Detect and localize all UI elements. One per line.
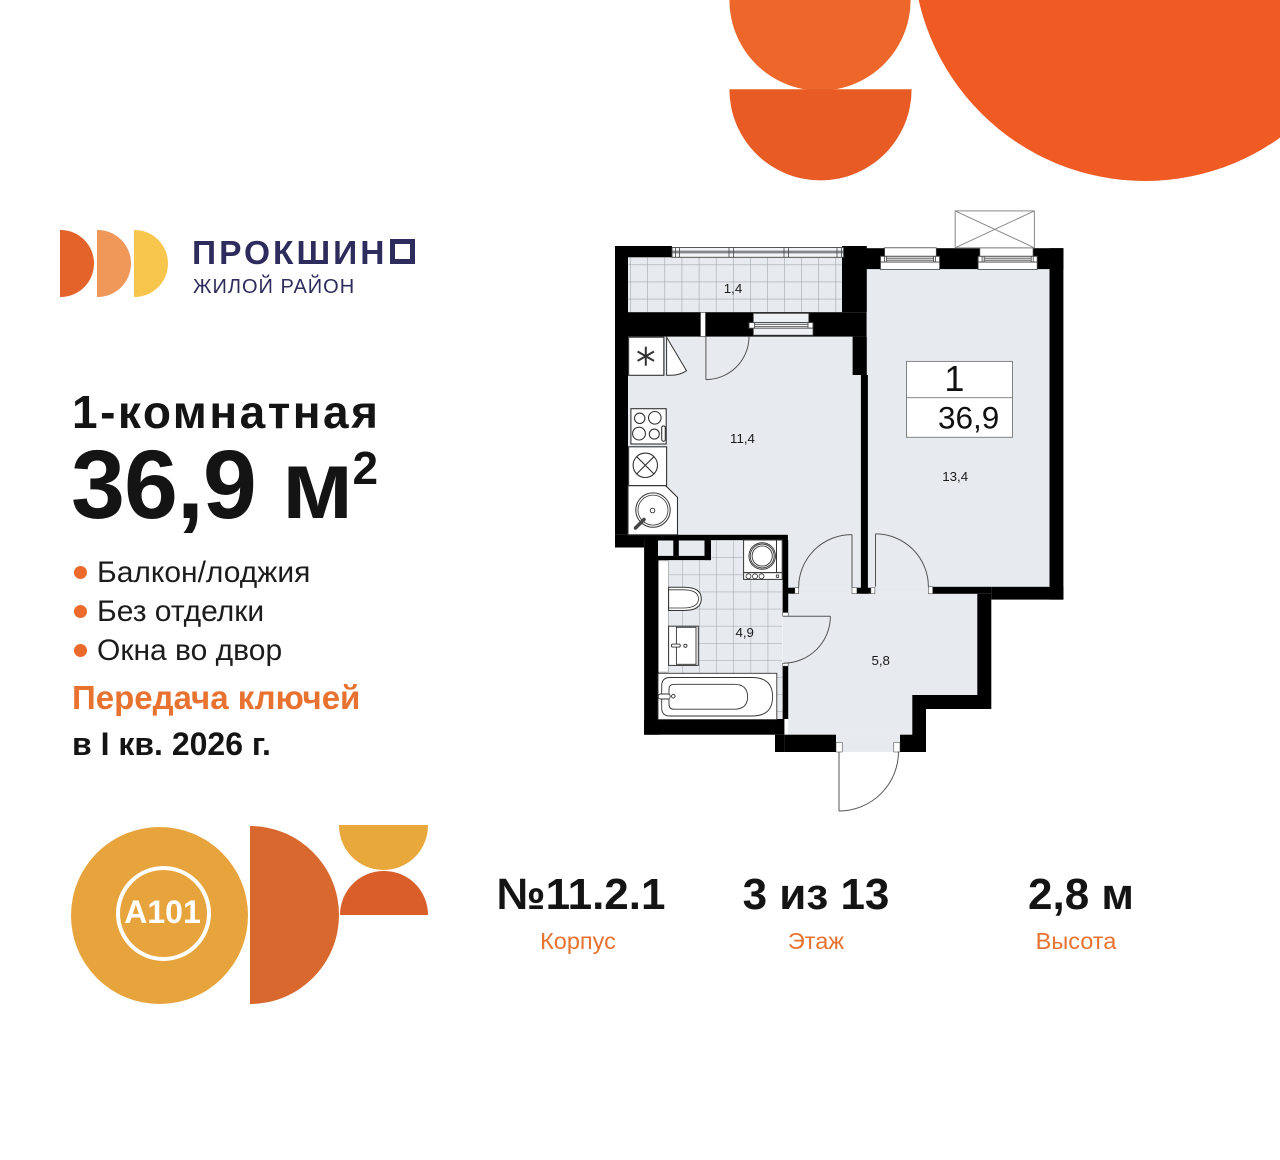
svg-text:13,4: 13,4: [942, 469, 968, 484]
svg-text:5,8: 5,8: [871, 653, 890, 668]
svg-text:11,4: 11,4: [730, 431, 755, 446]
svg-text:36,9: 36,9: [938, 400, 999, 436]
svg-text:4,9: 4,9: [735, 625, 754, 640]
svg-text:1,4: 1,4: [724, 281, 743, 296]
svg-text:1: 1: [944, 358, 964, 399]
